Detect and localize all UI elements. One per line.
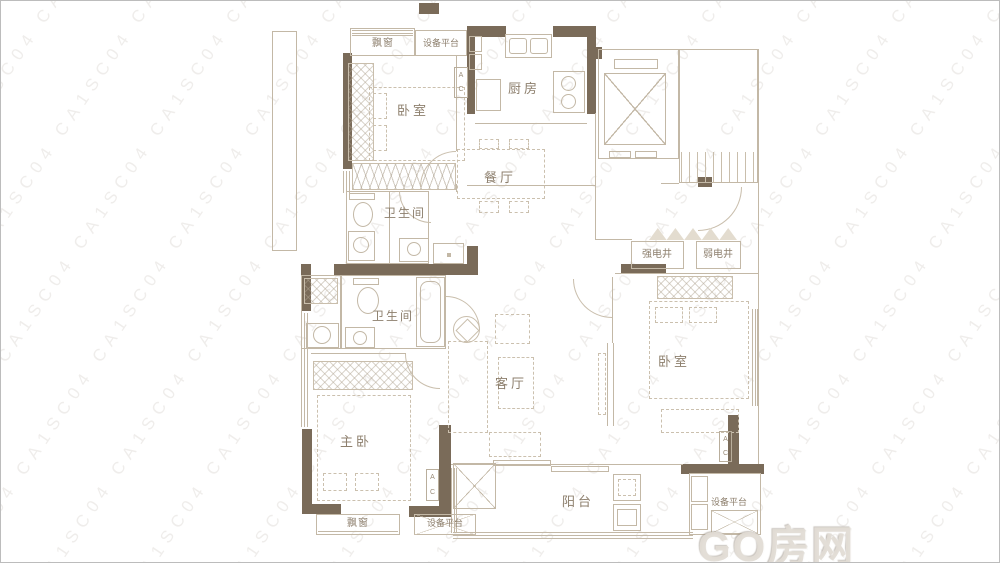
armchair <box>495 314 530 344</box>
chair <box>509 201 529 213</box>
pillow <box>323 473 347 491</box>
wall-line <box>595 113 596 239</box>
equipment-box <box>691 476 708 502</box>
wall-segment <box>587 28 596 114</box>
washer-drum <box>313 326 331 344</box>
bathroom-upper-label: 卫生间 <box>384 207 426 219</box>
elevator-slot <box>635 151 657 158</box>
bench <box>489 432 541 457</box>
ac-letter: A <box>723 436 728 443</box>
pillow <box>373 93 387 119</box>
utility-sink-basin <box>617 509 637 526</box>
wall-line <box>352 55 457 56</box>
ac-letter: A <box>459 72 464 79</box>
toilet <box>353 202 373 227</box>
living-label: 客厅 <box>495 377 527 390</box>
elevator-shaft <box>604 73 666 145</box>
tv <box>598 353 606 415</box>
wall-line <box>615 273 758 274</box>
strong-electric-shaft-label: 强电井 <box>642 250 672 260</box>
ac-letter: C <box>458 86 463 93</box>
wall-line <box>612 277 613 343</box>
wall-segment <box>467 246 478 266</box>
balcony-label: 阳台 <box>562 495 594 508</box>
ac-unit: A C <box>719 431 732 462</box>
wall-line <box>389 191 390 264</box>
bay-window-top-label: 飘窗 <box>372 39 394 49</box>
balcony-rail <box>453 532 693 539</box>
kitchen-cabinet <box>469 36 482 52</box>
ac-letter: C <box>723 450 728 457</box>
drain <box>353 237 369 253</box>
bench <box>661 409 739 433</box>
basin <box>407 242 421 256</box>
washer-inner <box>618 479 636 496</box>
basin <box>353 331 367 345</box>
counter-line <box>475 123 587 124</box>
sliding-door-panel <box>493 460 551 466</box>
chair <box>479 201 499 213</box>
exterior-contour <box>272 31 297 251</box>
equipment-platform-bottom-label: 设备平台 <box>427 519 463 528</box>
ac-unit: A C <box>454 67 468 98</box>
ac-unit: A C <box>426 469 439 501</box>
stair-treads <box>681 152 757 182</box>
chair <box>509 139 529 149</box>
wardrobe <box>313 361 413 390</box>
ac-letter: A <box>430 474 435 481</box>
bathroom-lower-label: 卫生间 <box>372 310 414 322</box>
tv-wall-line <box>613 343 614 426</box>
door-arc <box>573 279 612 318</box>
bedroom-top-left-label: 卧室 <box>397 104 429 117</box>
brand-watermark: GO房网 <box>698 513 855 563</box>
master-bedroom-label: 主卧 <box>340 435 372 448</box>
ac-letter: C <box>430 489 435 496</box>
shaft-hatch <box>649 228 737 240</box>
pillow <box>655 307 683 323</box>
pillow <box>689 307 717 323</box>
bedroom-right-label: 卧室 <box>658 355 690 368</box>
wall-line <box>595 239 632 240</box>
bay-window-glass <box>318 531 398 532</box>
burner <box>561 76 576 91</box>
elevator-slot <box>609 151 631 158</box>
bay-window-bottom-label: 飘窗 <box>347 519 369 529</box>
chair <box>479 139 499 149</box>
wall-segment <box>439 425 451 511</box>
bathtub-inner <box>420 281 441 343</box>
sink-basin <box>509 38 527 54</box>
wall-line <box>661 183 679 184</box>
basin-dot <box>447 253 451 257</box>
watermark-text: CA1SC04 CA1SC04 CA1SC04 CA1SC04 CA1SC04 … <box>886 0 1000 563</box>
floorplan-image: CA1SC04 CA1SC04 CA1SC04 CA1SC04 CA1SC04 … <box>0 0 1000 563</box>
burner <box>561 94 576 109</box>
pillow <box>355 473 379 491</box>
window <box>343 171 350 193</box>
bay-window-top-glass <box>352 30 413 36</box>
weak-electric-shaft-label: 弱电井 <box>703 250 733 260</box>
sink-basin <box>530 38 548 54</box>
wall-line <box>758 49 759 464</box>
watermark-text: CA1SC04 CA1SC04 CA1SC04 CA1SC04 CA1SC04 … <box>791 0 1000 563</box>
hatched-corner <box>453 463 496 509</box>
entry-door-arc <box>698 187 742 231</box>
wall-segment <box>302 429 312 514</box>
toilet-tank <box>349 193 375 200</box>
wardrobe <box>657 276 733 299</box>
dining-label: 餐厅 <box>484 171 516 184</box>
equipment-platform-right-label: 设备平台 <box>711 498 747 507</box>
wall-segment <box>419 3 439 14</box>
tv-wall-line <box>607 343 608 426</box>
shelf <box>304 278 338 304</box>
pillow <box>373 125 387 151</box>
kitchen-cabinet <box>469 54 482 70</box>
wall-segment <box>334 264 478 275</box>
equipment-platform-top-label: 设备平台 <box>423 39 459 48</box>
fridge <box>476 79 501 111</box>
door-arc <box>446 296 480 330</box>
elevator-slot <box>614 59 658 69</box>
wall-line <box>311 353 406 354</box>
wall-segment <box>302 504 341 514</box>
toilet-tank <box>353 278 379 285</box>
kitchen-label: 厨房 <box>508 82 540 95</box>
sofa <box>448 341 488 433</box>
sliding-door-panel <box>551 466 609 472</box>
